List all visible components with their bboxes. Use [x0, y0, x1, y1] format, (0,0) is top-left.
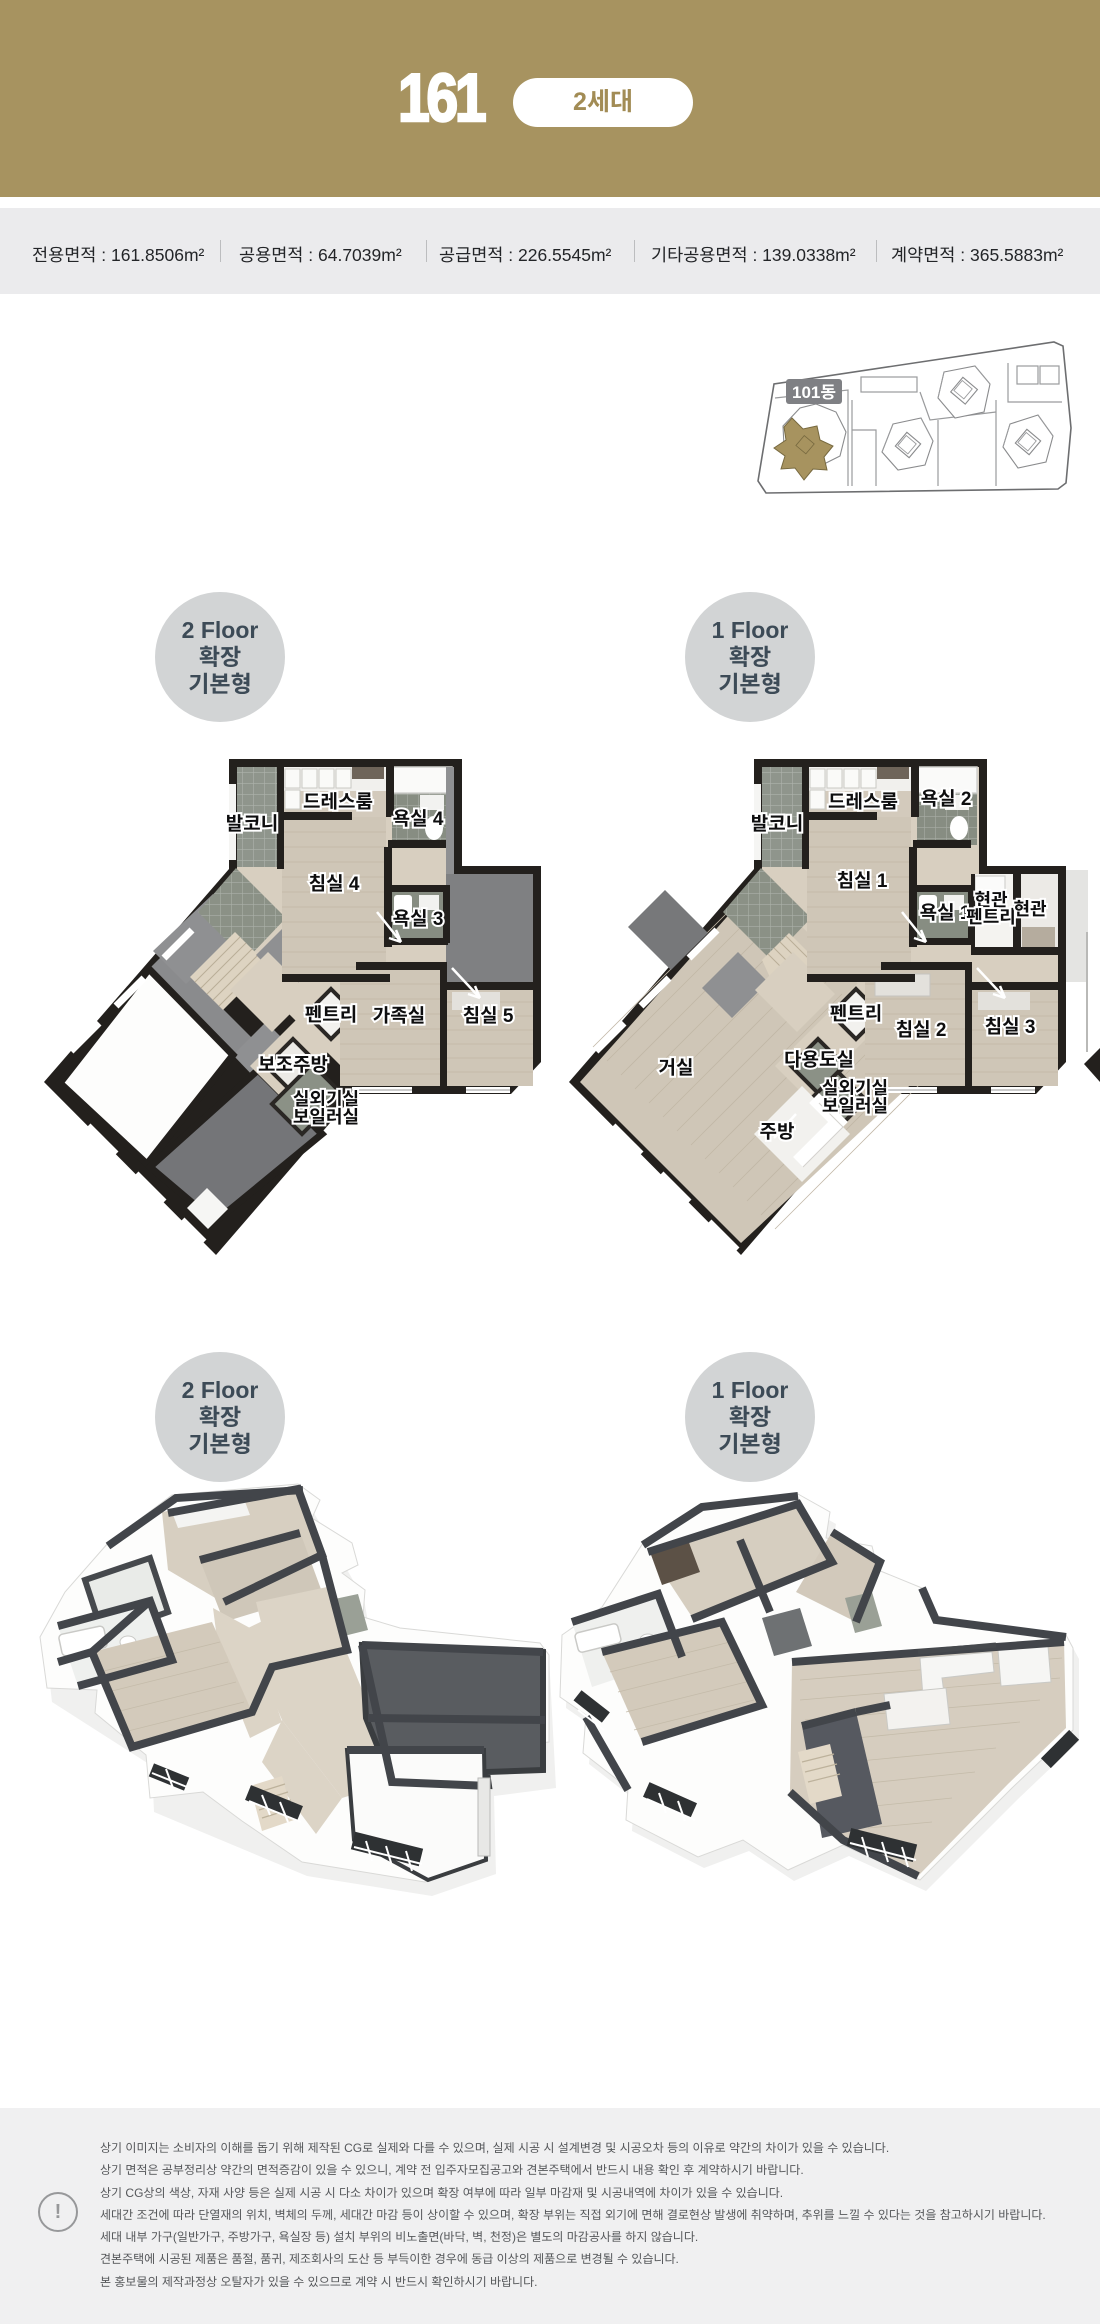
svg-text:드레스룸: 드레스룸 — [828, 792, 898, 813]
svg-text:발코니: 발코니 — [751, 814, 803, 835]
svg-text:보일러실: 보일러실 — [293, 1107, 359, 1127]
svg-text:욕실 3: 욕실 3 — [393, 909, 444, 930]
svg-text:실외기실: 실외기실 — [293, 1089, 359, 1109]
svg-text:보일러실: 보일러실 — [822, 1096, 888, 1116]
svg-text:욕실 2: 욕실 2 — [921, 789, 972, 810]
svg-text:침실 5: 침실 5 — [463, 1006, 514, 1027]
svg-text:침실 3: 침실 3 — [985, 1017, 1036, 1038]
svg-text:거실: 거실 — [659, 1058, 694, 1079]
svg-text:욕실 4: 욕실 4 — [393, 809, 444, 830]
svg-text:101동: 101동 — [792, 383, 836, 402]
svg-text:펜트리: 펜트리 — [830, 1004, 882, 1025]
svg-text:욕실 1: 욕실 1 — [920, 903, 971, 924]
svg-text:펜트리: 펜트리 — [305, 1005, 357, 1026]
svg-text:다용도실: 다용도실 — [784, 1050, 854, 1071]
svg-text:실외기실: 실외기실 — [822, 1078, 888, 1098]
svg-text:주방: 주방 — [760, 1122, 795, 1143]
svg-text:펜트리: 펜트리 — [966, 907, 1016, 927]
svg-text:드레스룸: 드레스룸 — [303, 792, 373, 813]
svg-text:침실 4: 침실 4 — [309, 874, 360, 895]
svg-text:현관: 현관 — [1013, 899, 1047, 919]
svg-text:가족실: 가족실 — [373, 1006, 425, 1027]
svg-text:발코니: 발코니 — [226, 814, 278, 835]
svg-text:침실 2: 침실 2 — [896, 1020, 947, 1041]
svg-text:보조주방: 보조주방 — [258, 1055, 328, 1076]
svg-text:침실 1: 침실 1 — [837, 871, 888, 892]
